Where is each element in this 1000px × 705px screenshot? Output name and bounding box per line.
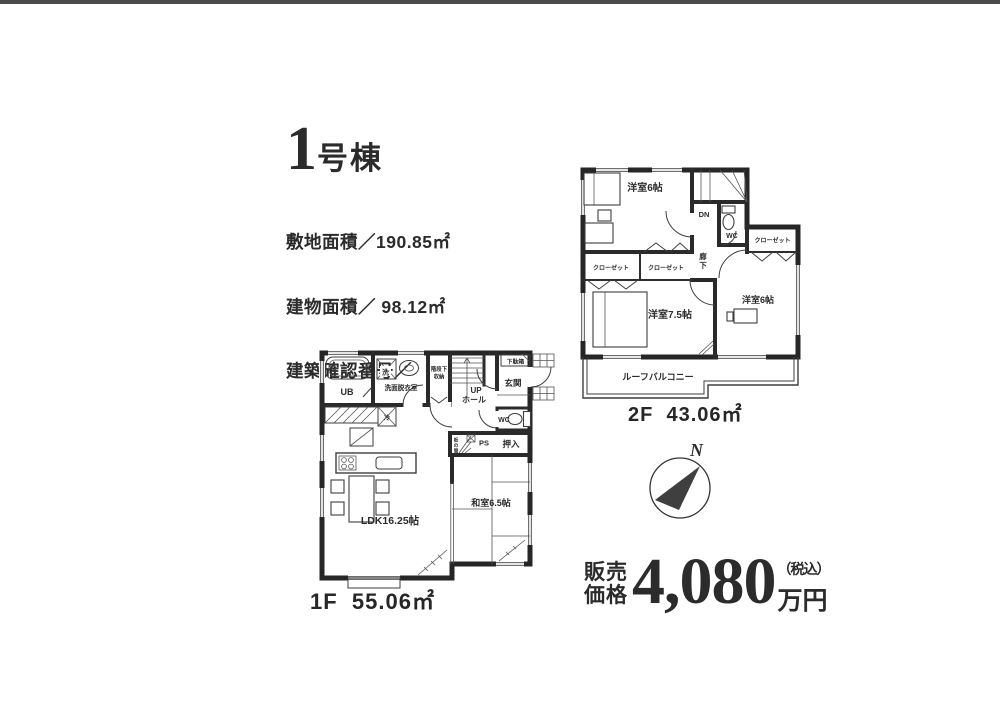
bathtub-icon xyxy=(326,357,369,379)
floor2-area-label: 2F 43.06㎡ xyxy=(628,398,743,427)
price-unit: 万円 xyxy=(778,581,830,617)
washer-label: 洗 xyxy=(382,368,389,377)
shoe-box-label: 下駄箱 xyxy=(507,358,525,366)
price-label-line1: 販売 xyxy=(584,561,628,584)
stair-storage-label-1: 階段下 xyxy=(431,365,448,373)
hallway-label-char2: 下 xyxy=(699,261,707,270)
compass: N xyxy=(638,438,724,524)
stairs-up-label: UP xyxy=(470,386,482,395)
sink-icon xyxy=(400,361,419,376)
kitchen-counter-icon xyxy=(325,407,416,473)
room-label-west6-top: 洋室6帖 xyxy=(627,181,663,194)
flyer-page: 1号棟 敷地面積／190.85㎡ 建物面積／ 98.12㎡ 建築確認番号／ xyxy=(0,0,1000,705)
washitsu-label: 和室6.5帖 xyxy=(470,497,511,508)
oshiire-label: 押入 xyxy=(502,439,520,449)
desk-icon xyxy=(727,309,757,323)
price-label: 販売 価格 xyxy=(584,561,628,607)
building-area: 建物面積／ 98.12㎡ xyxy=(286,297,451,319)
stair-storage-label-2: 収納 xyxy=(434,373,445,381)
closet-label: クローゼット xyxy=(648,264,684,272)
room-label-west75: 洋室7.5帖 xyxy=(648,308,692,321)
building-number: 1 xyxy=(286,115,317,183)
floor1-area-label: 1F 55.06㎡ xyxy=(310,584,435,616)
ps-box-icon xyxy=(459,435,475,453)
entrance-porch-tiles xyxy=(533,354,554,400)
price-amount: 4,080 xyxy=(632,552,776,613)
closet-label: クローゼット xyxy=(593,264,629,272)
sliding-door-mark xyxy=(418,540,525,575)
building-title: 1号棟 xyxy=(286,118,451,180)
toilet-icon xyxy=(508,412,531,427)
balcony-label: ルーフバルコニー xyxy=(622,372,693,382)
fridge-label: 冷 xyxy=(384,414,390,422)
price-label-line2: 価格 xyxy=(584,584,628,607)
entrance-label: 玄関 xyxy=(504,378,521,388)
compass-needle-icon xyxy=(655,466,700,510)
washroom-label: 洗面脱衣室 xyxy=(385,383,418,392)
floor2-plan: 洋室6帖 DN WC クローゼット クローゼット クローゼット 廊 下 洋室7.… xyxy=(570,153,815,403)
hallway-label-char1: 廊 xyxy=(699,251,707,261)
ub-label: UB xyxy=(341,387,354,397)
floor1-plan: UB 洗 洗面脱衣室 階段下 収納 UP ホール 玄関 下駄箱 WC PS 押入… xyxy=(300,345,565,593)
hall-label: ホール xyxy=(462,396,486,405)
itanoma-char3: 間 xyxy=(454,448,459,455)
building-suffix: 号棟 xyxy=(317,141,383,176)
dresser-icon xyxy=(585,210,613,243)
bed-icon xyxy=(593,292,647,347)
scan-edge-line xyxy=(0,0,1000,4)
room-label-west6-right: 洋室6帖 xyxy=(742,294,774,305)
sliding-door-mark xyxy=(699,341,714,355)
toilet-icon xyxy=(722,206,735,230)
wc-label: WC xyxy=(726,233,738,240)
tatami-lines xyxy=(451,455,530,564)
land-area: 敷地面積／190.85㎡ xyxy=(286,232,451,254)
bed-icon xyxy=(584,173,620,205)
compass-north-label: N xyxy=(689,440,704,460)
price-tax-note: （税込） xyxy=(778,559,830,579)
ldk-label: LDK16.25帖 xyxy=(361,514,420,527)
ps-label: PS xyxy=(479,439,489,448)
price-unit-block: （税込） 万円 xyxy=(778,559,830,617)
stairs-dn-label: DN xyxy=(699,210,710,219)
closet-label: クローゼット xyxy=(754,237,790,245)
price-block: 販売 価格 4,080 （税込） 万円 xyxy=(584,552,830,617)
wc-label: WC xyxy=(498,417,510,424)
stairs-down-icon xyxy=(701,170,747,202)
floor1-door-arcs xyxy=(363,367,551,428)
